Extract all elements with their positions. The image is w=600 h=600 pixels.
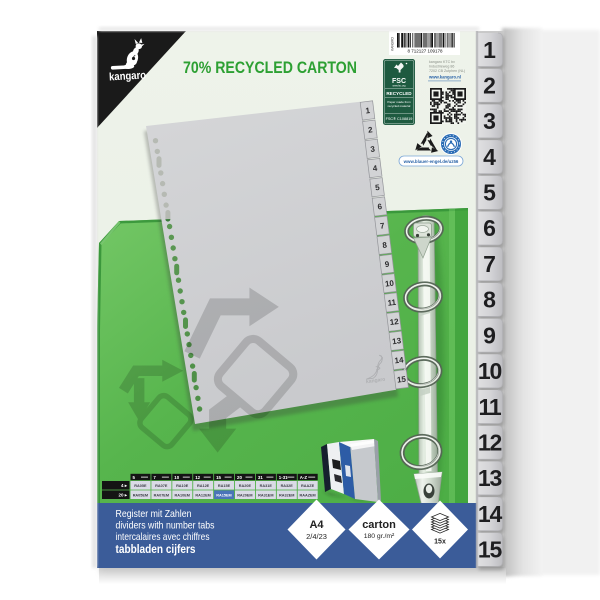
svg-text:15: 15 — [396, 375, 406, 385]
svg-text:KANGRO: KANGRO — [391, 37, 395, 51]
svg-text:1: 1 — [483, 37, 496, 63]
svg-text:RA12EM: RA12EM — [195, 493, 210, 497]
svg-text:10: 10 — [384, 279, 394, 289]
svg-text:70% RECYCLED CARTON: 70% RECYCLED CARTON — [183, 58, 357, 77]
svg-text:12: 12 — [478, 430, 502, 456]
svg-text:RA10EM: RA10EM — [174, 493, 189, 497]
svg-text:carton: carton — [362, 519, 396, 531]
svg-text:A4: A4 — [309, 519, 324, 531]
svg-text:RA05EM: RA05EM — [133, 493, 148, 497]
svg-text:RA07EM: RA07EM — [154, 493, 169, 497]
svg-text:10: 10 — [174, 475, 179, 480]
svg-text:12: 12 — [195, 475, 200, 480]
svg-text:13: 13 — [478, 465, 502, 491]
svg-text:RA20EM: RA20EM — [237, 493, 252, 497]
svg-text:RA15EM: RA15EM — [216, 493, 231, 497]
svg-text:5: 5 — [483, 180, 496, 206]
svg-text:11: 11 — [387, 298, 397, 308]
svg-text:RA05E: RA05E — [134, 484, 147, 488]
svg-text:dividers with number tabs: dividers with number tabs — [116, 520, 215, 532]
svg-text:kangaro: kangaro — [109, 70, 147, 84]
svg-text:4: 4 — [483, 144, 496, 170]
svg-text:10: 10 — [478, 358, 502, 384]
svg-text:www.kangaro.nl: www.kangaro.nl — [428, 75, 461, 80]
svg-text:2: 2 — [483, 73, 496, 99]
svg-text:A-Z: A-Z — [300, 475, 308, 480]
svg-text:31: 31 — [258, 475, 263, 480]
svg-text:RA31E: RA31E — [260, 484, 273, 488]
svg-text:recycled material: recycled material — [388, 104, 411, 108]
svg-text:15: 15 — [478, 537, 503, 563]
svg-text:Industrieweg 86: Industrieweg 86 — [429, 65, 454, 69]
svg-text:6: 6 — [483, 215, 496, 241]
svg-text:FSC® C108819: FSC® C108819 — [386, 117, 413, 121]
svg-text:RA07E: RA07E — [155, 484, 168, 488]
svg-text:RA10E: RA10E — [176, 484, 189, 488]
svg-text:tabbladen cijfers: tabbladen cijfers — [116, 544, 196, 556]
svg-text:180 gr./m²: 180 gr./m² — [364, 533, 395, 540]
svg-text:14: 14 — [478, 501, 503, 527]
svg-text:www.blauer-engel.de/uz56: www.blauer-engel.de/uz56 — [403, 159, 459, 164]
svg-text:12: 12 — [389, 317, 399, 327]
svg-text:8 712127 109178: 8 712127 109178 — [407, 49, 443, 54]
svg-text:RECYCLED: RECYCLED — [386, 91, 412, 96]
svg-text:20 ▸: 20 ▸ — [118, 492, 127, 497]
svg-text:20: 20 — [237, 475, 242, 480]
svg-text:2/4/23: 2/4/23 — [306, 532, 327, 541]
svg-text:9: 9 — [483, 322, 496, 348]
svg-text:4 ▸: 4 ▸ — [121, 483, 128, 488]
svg-text:8: 8 — [483, 287, 496, 313]
svg-text:www.fsc.org: www.fsc.org — [393, 85, 407, 88]
svg-text:RA15E: RA15E — [218, 484, 231, 488]
svg-text:15x: 15x — [434, 539, 446, 546]
svg-text:kangaro KTC bv: kangaro KTC bv — [429, 60, 455, 64]
svg-text:RA31EM: RA31EM — [258, 493, 273, 497]
svg-text:RA32E: RA32E — [281, 484, 294, 488]
svg-text:7: 7 — [483, 251, 496, 277]
svg-text:7202 CB Zutphen (NL): 7202 CB Zutphen (NL) — [429, 69, 465, 73]
svg-text:15: 15 — [216, 475, 221, 480]
svg-text:RA32EM: RA32EM — [279, 493, 294, 497]
svg-text:14: 14 — [394, 355, 404, 365]
svg-text:RAAZEM: RAAZEM — [299, 493, 315, 497]
svg-text:RAAZE: RAAZE — [301, 484, 315, 488]
svg-text:RA20E: RA20E — [239, 484, 252, 488]
svg-text:RA12E: RA12E — [197, 484, 210, 488]
svg-text:13: 13 — [392, 336, 402, 346]
svg-text:3: 3 — [483, 108, 496, 134]
svg-text:intercalaires avec chiffres: intercalaires avec chiffres — [116, 531, 210, 543]
svg-text:11: 11 — [479, 394, 502, 420]
svg-text:Register mit Zahlen: Register mit Zahlen — [116, 508, 192, 520]
svg-text:1-31: 1-31 — [279, 475, 288, 480]
